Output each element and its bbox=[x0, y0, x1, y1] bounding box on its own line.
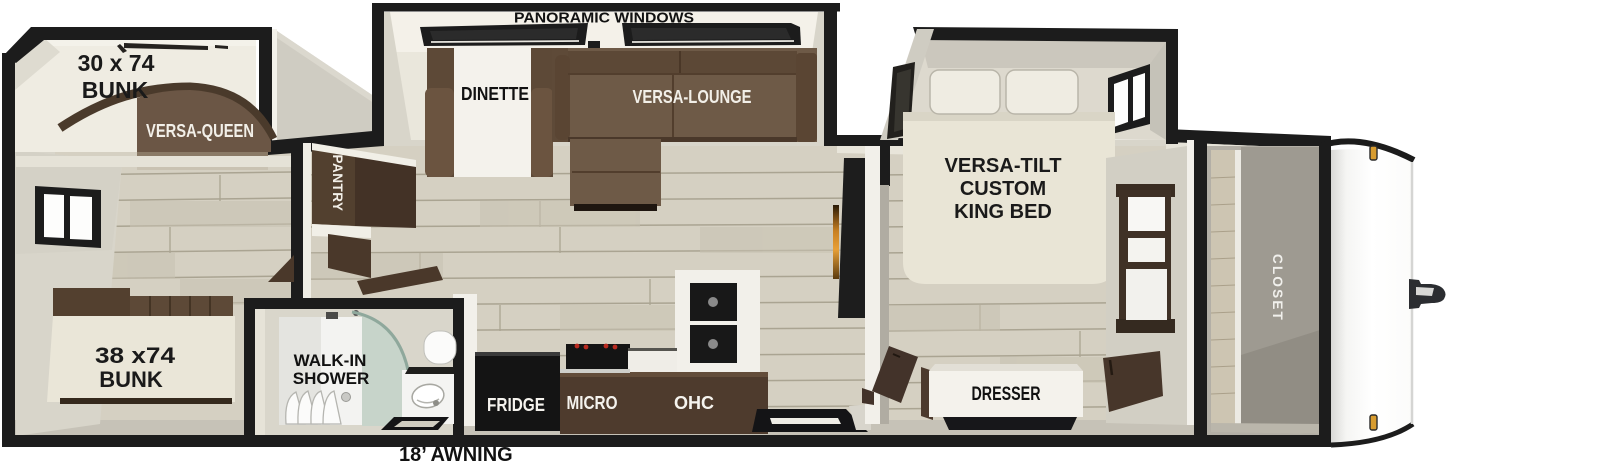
svg-text:BUNK: BUNK bbox=[82, 77, 149, 103]
svg-text:VERSA-QUEEN: VERSA-QUEEN bbox=[146, 121, 254, 141]
svg-text:CUSTOM: CUSTOM bbox=[960, 178, 1046, 200]
svg-text:SHOWER: SHOWER bbox=[293, 369, 370, 388]
svg-text:KING BED: KING BED bbox=[954, 201, 1052, 223]
svg-text:VERSA-TILT: VERSA-TILT bbox=[945, 155, 1062, 177]
svg-text:DINETTE: DINETTE bbox=[461, 84, 529, 104]
svg-text:PANTRY: PANTRY bbox=[330, 155, 345, 212]
svg-text:OHC: OHC bbox=[674, 393, 714, 413]
svg-text:PANORAMIC WINDOWS: PANORAMIC WINDOWS bbox=[514, 10, 694, 27]
svg-text:MICRO: MICRO bbox=[567, 393, 618, 413]
svg-text:30 x 74: 30 x 74 bbox=[78, 50, 155, 76]
svg-text:18’ AWNING: 18’ AWNING bbox=[399, 444, 513, 466]
svg-text:WALK-IN: WALK-IN bbox=[294, 351, 367, 370]
svg-text:DRESSER: DRESSER bbox=[972, 384, 1041, 405]
svg-text:38 x74: 38 x74 bbox=[95, 343, 176, 368]
svg-text:BUNK: BUNK bbox=[99, 367, 163, 392]
svg-text:VERSA-LOUNGE: VERSA-LOUNGE bbox=[633, 87, 752, 107]
svg-text:CLOSET: CLOSET bbox=[1270, 254, 1285, 322]
svg-text:FRIDGE: FRIDGE bbox=[487, 395, 545, 415]
